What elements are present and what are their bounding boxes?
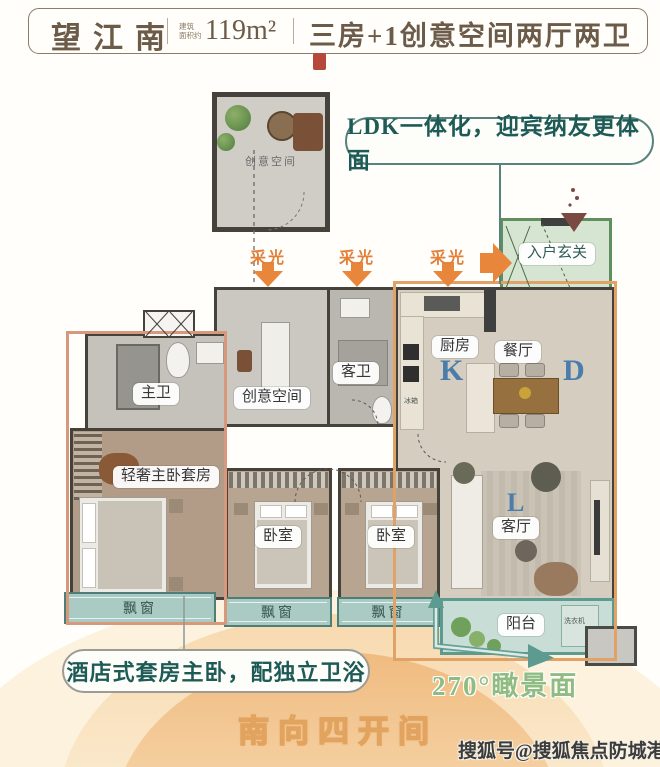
room-label-balcony: 阳台 <box>498 614 544 636</box>
fridge-label: 冰箱 <box>404 396 418 406</box>
dining-chair <box>525 414 545 428</box>
room-label-master-bath: 主卫 <box>133 383 179 405</box>
bay-window-label: 飘窗 <box>261 602 295 622</box>
master-bed <box>79 497 167 595</box>
layout-title: 三房+1创意空间两厅两卫 <box>309 14 632 53</box>
room-label-entrance: 入户玄关 <box>519 243 595 265</box>
wardrobe <box>342 472 436 488</box>
pillow <box>285 505 307 518</box>
ldk-callout-text: LDK一体化，迎宾纳友更体面 <box>347 107 652 175</box>
pillow <box>260 505 282 518</box>
ldk-callout: LDK一体化，迎宾纳友更体面 <box>345 117 654 165</box>
south-bays-text: 南向四开间 <box>238 706 438 751</box>
entry-marker-icon <box>568 203 571 206</box>
wardrobe <box>229 472 328 488</box>
stove-burner <box>403 344 419 360</box>
sink <box>340 298 370 318</box>
bedroom-a-label-text: 卧室 <box>263 528 293 544</box>
pillow <box>82 548 96 588</box>
pillow <box>82 503 96 543</box>
bay-window-2: 飘窗 <box>224 597 332 627</box>
sink <box>196 342 224 364</box>
nightstand <box>169 499 183 513</box>
desk-chair <box>237 350 252 372</box>
nightstand <box>345 503 359 515</box>
toilet-icon <box>166 342 190 378</box>
area-prefix-line2: 面积约 <box>179 31 202 40</box>
planter-strip <box>74 432 102 500</box>
dining-chair <box>525 363 545 377</box>
dining-letter: D <box>563 354 585 388</box>
room-label-master-suite: 轻奢主卧套房 <box>113 466 219 488</box>
window-box <box>143 310 195 338</box>
nightstand <box>314 503 328 515</box>
floorplan-poster: 望江南 建筑 面积约 119m² 三房+1创意空间两厅两卫 创意空间 LDK一体… <box>0 0 660 767</box>
tv-cabinet <box>590 480 610 582</box>
cooktop <box>424 296 460 311</box>
master-bath-label-text: 主卫 <box>141 385 171 401</box>
blanket <box>98 501 162 589</box>
bay-window-label: 飘窗 <box>123 598 157 618</box>
bay-window-1: 飘窗 <box>64 592 216 624</box>
master-suite-callout: 酒店式套房主卧，配独立卫浴 <box>62 649 370 693</box>
page-title: 望江南 <box>51 13 177 57</box>
creative-label-text: 创意空间 <box>242 389 302 405</box>
guest-bath-label-text: 客卫 <box>341 364 371 380</box>
washer-label: 洗衣机 <box>564 616 585 626</box>
area-prefix-line1: 建筑 <box>179 22 202 31</box>
room-label-bedroom-b: 卧室 <box>368 526 414 548</box>
entry-marker-icon <box>575 196 579 200</box>
plant-icon <box>531 462 561 492</box>
nightstand <box>423 503 437 515</box>
seal-stamp <box>313 53 326 70</box>
ac-platform <box>585 626 637 666</box>
pillow <box>396 505 418 518</box>
master-bedroom <box>70 428 227 600</box>
pillow <box>371 505 393 518</box>
room-label-bedroom-a: 卧室 <box>255 526 301 548</box>
header-divider <box>167 18 168 44</box>
area-value: 119m² <box>205 15 276 47</box>
kitchen-island <box>466 363 495 433</box>
room-label-creative-top: 创意空间 <box>245 153 297 169</box>
area-prefix: 建筑 面积约 <box>179 22 202 40</box>
daylight-label-2: 采光 <box>339 244 375 268</box>
master-bathroom <box>85 333 227 431</box>
plant-icon <box>225 105 251 131</box>
plant-icon <box>487 639 501 653</box>
bay-window-3: 飘窗 <box>337 597 440 627</box>
plant-icon <box>217 133 235 151</box>
nightstand <box>169 577 183 591</box>
dining-chair <box>499 363 519 377</box>
tv-screen <box>594 500 600 555</box>
desk <box>261 322 290 388</box>
master-suite-callout-text: 酒店式套房主卧，配独立卫浴 <box>66 655 365 687</box>
bay-window-label: 飘窗 <box>372 602 406 622</box>
table-centerpiece <box>519 387 531 399</box>
plant-icon <box>453 462 475 484</box>
room-label-living: 客厅 <box>493 517 539 539</box>
room-label-creative: 创意空间 <box>234 387 310 409</box>
header-divider-2 <box>293 18 294 44</box>
entry-marker-icon <box>571 188 575 192</box>
wall-column <box>484 290 496 332</box>
entrance-door <box>541 218 571 226</box>
entrance-label-text: 入户玄关 <box>527 245 587 261</box>
sofa <box>451 475 483 589</box>
stove-burner <box>403 366 419 382</box>
plant-icon <box>469 631 485 647</box>
armchair <box>293 113 323 151</box>
daylight-label-1: 采光 <box>250 244 286 268</box>
dining-label-text: 餐厅 <box>503 343 533 359</box>
guest-bathroom <box>327 287 397 427</box>
plant-icon <box>451 617 471 637</box>
header-frame: 望江南 建筑 面积约 119m² 三房+1创意空间两厅两卫 <box>28 8 648 54</box>
master-suite-label-text: 轻奢主卧套房 <box>121 468 211 484</box>
watermark: 搜狐号@搜狐焦点防城港站 <box>458 736 660 763</box>
living-letter: L <box>507 488 524 518</box>
living-label-text: 客厅 <box>501 519 531 535</box>
dining-chair <box>499 414 519 428</box>
nightstand <box>234 503 248 515</box>
view-angle-text: 270°瞰景面 <box>432 664 578 703</box>
creative-space-module: 创意空间 <box>212 92 330 232</box>
balcony-label-text: 阳台 <box>506 616 536 632</box>
bedroom-b-label-text: 卧室 <box>376 528 406 544</box>
toilet-icon <box>372 396 392 424</box>
room-label-guest-bath: 客卫 <box>333 362 379 384</box>
coffee-table <box>515 540 537 562</box>
room-label-dining: 餐厅 <box>495 341 541 363</box>
daylight-label-3: 采光 <box>430 244 466 268</box>
kitchen-letter: K <box>440 354 463 388</box>
kitchen-label-text: 厨房 <box>440 338 470 354</box>
floor-cushion <box>534 562 578 596</box>
